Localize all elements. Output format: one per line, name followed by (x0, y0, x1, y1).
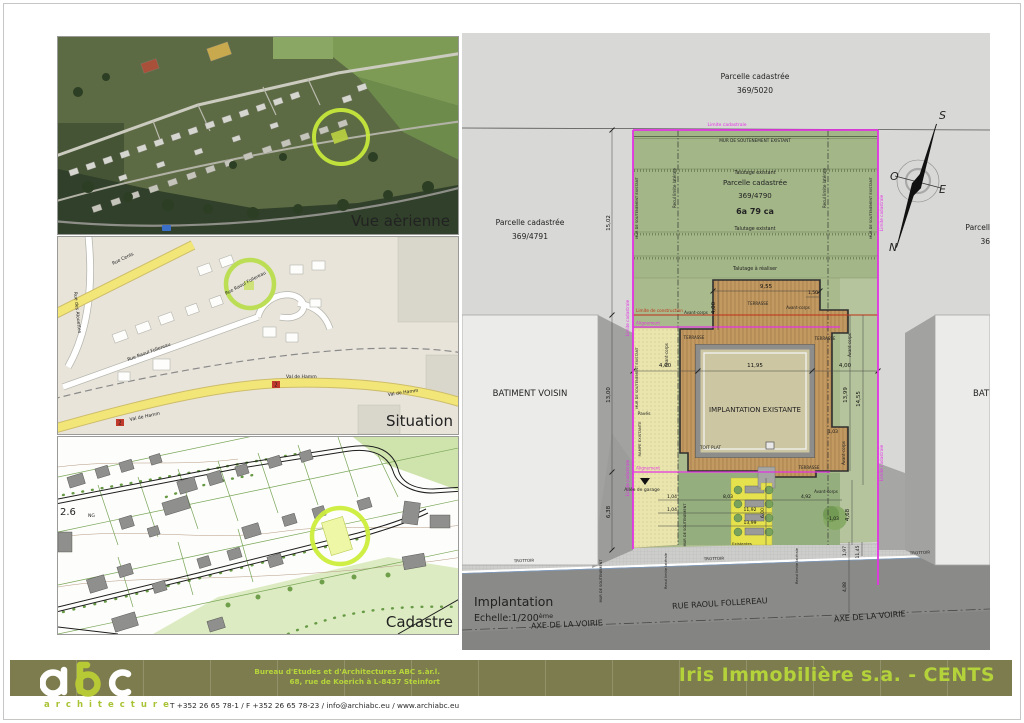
project-title: Iris Immobilière s.a. - CENTS (600, 664, 995, 686)
parcel-right-number: 36 (980, 237, 990, 246)
dim: 4,00 (659, 363, 672, 369)
dim: 4,00 (839, 363, 852, 369)
compass-n: N (889, 241, 897, 254)
dim: 11,92 (744, 507, 757, 513)
aerial-caption: Vue aèrienne (351, 212, 450, 230)
retaining-wall-label: MUR DE SOUTENEMENT (599, 559, 603, 603)
compass-o: O (890, 170, 899, 183)
neighbour-building-label: BATIMENT VOISIN (493, 389, 568, 399)
dim: 11,45 (855, 545, 861, 558)
cadastre-map-panel: 2.6 NG Cadastre (57, 436, 459, 635)
setback-label: Recul limite latérale (822, 167, 827, 208)
garage-alley-label: Allée de garage (624, 486, 660, 493)
limit-label: Limite cadastrale (879, 444, 884, 481)
ng-note: NG (88, 513, 95, 519)
aerial-view-panel: Vue aèrienne (57, 36, 459, 235)
drawing-title: Implantation (474, 594, 553, 609)
site-parcel-area: 6a 79 ca (736, 207, 774, 216)
sidewalk-label: TROTTOIR (513, 558, 535, 564)
dim: 4,92 (801, 494, 811, 500)
talus-label: Talutage existant (733, 226, 775, 232)
parcel-left-name: Parcelle cadastrée (496, 218, 565, 227)
retaining-wall-label: MUR DE SOUTENEMENT EXISTANT (719, 138, 791, 143)
dim: 13,99 (744, 520, 757, 526)
aerial-photo: Vue aèrienne (58, 37, 458, 234)
dim: 1,03 (829, 516, 839, 522)
compass-e: E (939, 183, 946, 196)
parcel-right-name: Parcell (965, 223, 990, 232)
talus-label: Talutage à réaliser (732, 265, 777, 272)
company-line2: 68, rue de Koerich à L-8437 Steinfort (240, 677, 440, 687)
setback-label: Recul limite latérale (664, 552, 668, 589)
terrace-label: TERRASSE (798, 465, 820, 470)
construction-limit-label: Limite de construction (636, 308, 683, 313)
neighbour-left (462, 315, 633, 568)
dim: 1,97 (842, 546, 848, 556)
setback-label: Recul limite latérale (795, 547, 799, 584)
neighbour-building-label: BATIMENT VOISIN (973, 389, 990, 399)
parcel-top-name: Parcelle cadastrée (721, 72, 790, 81)
limit-label: Limite cadastrale (708, 122, 747, 128)
dim: 15,02 (606, 215, 612, 231)
dim: 1,04 (667, 507, 677, 513)
drawing-sheet: Vue aèrienne (0, 0, 1024, 723)
dim: 4,88 (842, 582, 848, 592)
dim: 14,55 (856, 391, 862, 407)
abc-logo (40, 661, 152, 697)
street-label: Val de Hamm (286, 374, 317, 380)
company-address: Bureau d'Etudes et d'Architectures ABC s… (240, 667, 440, 688)
terrace-label: TERRASSE (814, 336, 836, 341)
parcel-left-number: 369/4791 (512, 232, 548, 241)
scale-note: 2.6 (60, 507, 76, 518)
retaining-wall-label: MUR DE SOUTENEMENT EXISTANT (869, 176, 873, 238)
dim: 11,95 (747, 363, 763, 369)
bus-stop-icon (162, 225, 171, 231)
site-parcel-name: Parcelle cadastrée (723, 179, 787, 187)
parcel-top-number: 369/5020 (737, 86, 773, 95)
situation-map-panel: 2 2 Rue Cents Rue des Alouettes Rue Raou… (57, 236, 459, 435)
terrace-label: TERRASSE (747, 301, 769, 306)
existing-building (696, 345, 815, 458)
company-line1: Bureau d'Etudes et d'Architectures ABC s… (240, 667, 440, 677)
roof-access (766, 442, 774, 449)
paving-label: Pavés (637, 410, 651, 417)
dim: 1,03 (828, 429, 838, 435)
talus-label: Talutage existant (733, 170, 775, 176)
alignment-label: Alignement (636, 321, 660, 326)
contact-line: T +352 26 65 78-1 / F +352 26 65 78-23 /… (170, 701, 438, 710)
situation-map: 2 2 Rue Cents Rue des Alouettes Rue Raou… (58, 237, 458, 434)
logo-subtitle: architecture (44, 700, 175, 710)
avant-corps-label: Avant-corps (841, 441, 846, 465)
sidewalk-label: TROTTOIR (703, 556, 725, 562)
dim: 4,68 (845, 508, 851, 521)
dim: 8,03 (723, 494, 733, 500)
cadastre-caption: Cadastre (386, 613, 453, 631)
avant-corps-label: Avant-corps (847, 333, 852, 357)
situation-caption: Situation (386, 412, 453, 430)
dim: 6,00 (760, 508, 766, 518)
route-number: 2 (274, 383, 277, 389)
site-parcel-number: 369/4790 (738, 192, 772, 200)
existing-plants-label: Existantes (732, 541, 752, 546)
dim: 4,00 (711, 301, 717, 314)
dim: 13,00 (606, 387, 612, 403)
cadastre-map: 2.6 NG Cadastre (58, 437, 458, 634)
alignment-label: Alignement (636, 466, 660, 471)
dim: 6,38 (606, 505, 612, 518)
terrace-label: TERRASSE (683, 335, 705, 340)
dim: 1,50 (808, 290, 818, 296)
route-number: 2 (118, 421, 121, 427)
flat-roof-label: TOIT PLAT (699, 445, 721, 450)
retaining-wall-label: MUR DE SOUTENEMENT (683, 503, 687, 547)
dim: 9,55 (760, 284, 773, 290)
avant-corps-label: Avant-corps (814, 489, 838, 494)
setback-label: Recul limite latérale (672, 167, 677, 208)
building-label: IMPLANTATION EXISTANTE (709, 406, 801, 414)
site-plan: S O E N Parcelle cadastrée 369/5020 Parc… (462, 33, 990, 650)
limit-label: Limite cadastrale (879, 194, 884, 231)
dim: 13,99 (843, 387, 849, 403)
retaining-wall-label: MUR DE SOUTENEMENT EXISTANT (635, 346, 639, 408)
avant-corps-label: Avant-corps (684, 310, 708, 315)
ramp-label: RAMPE EXISTANTE (637, 421, 642, 457)
compass-s: S (939, 109, 946, 122)
dim: 1,04 (667, 494, 677, 500)
retaining-wall-label: MUR DE SOUTENEMENT EXISTANT (635, 176, 639, 238)
avant-corps-label: Avant-corps (786, 305, 810, 310)
limit-label: Limite cadastrale (625, 299, 630, 336)
